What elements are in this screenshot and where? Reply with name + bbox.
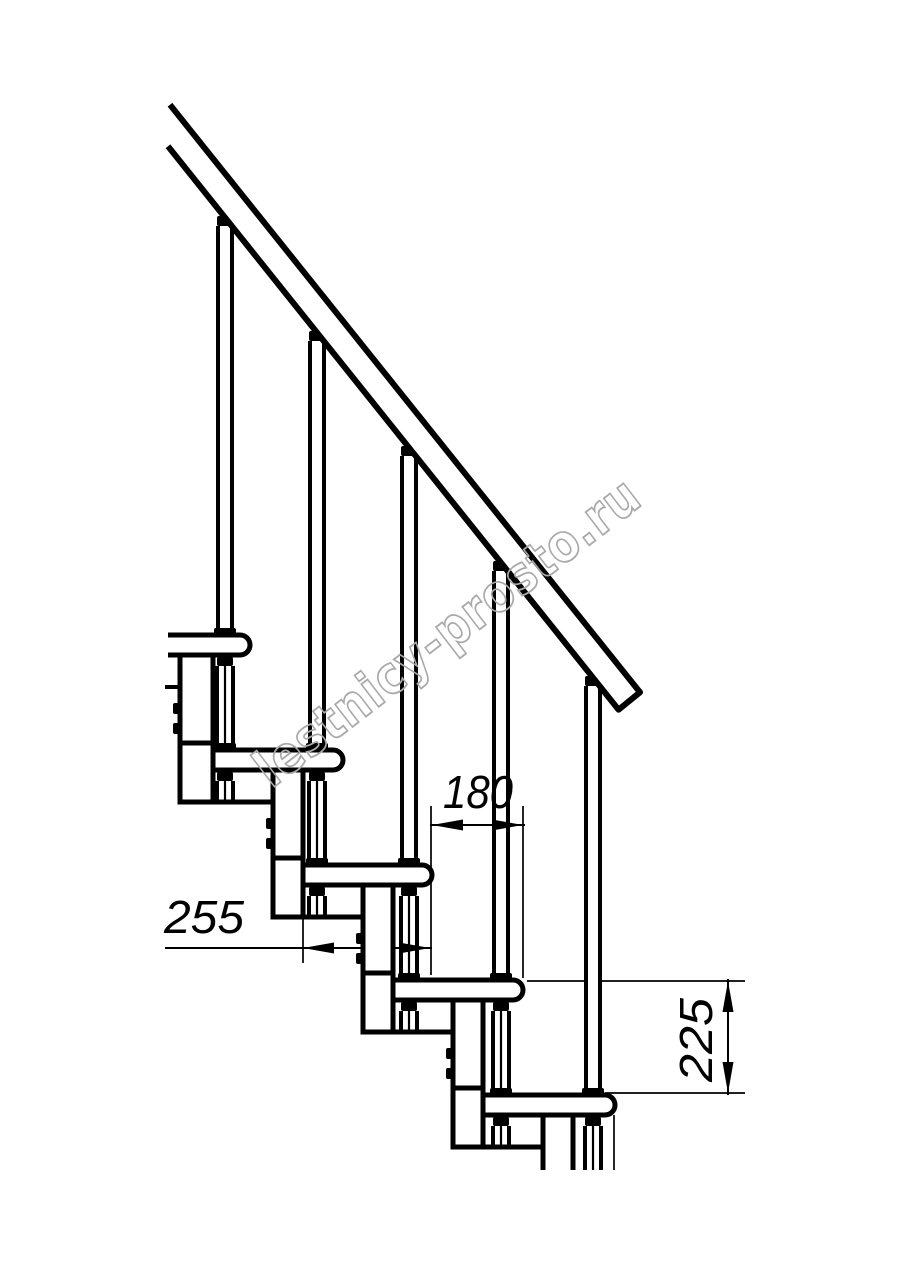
column-bolt: [356, 933, 365, 944]
through-bolt-nut: [401, 1002, 417, 1011]
column-bolt: [446, 1068, 455, 1079]
through-bolt-nut: [401, 887, 417, 896]
baluster-foot-plate: [490, 1088, 512, 1095]
column-bolt: [446, 1048, 455, 1059]
baluster-shaft: [310, 341, 324, 744]
baluster-foot-plate: [214, 628, 236, 635]
through-bolt-nut: [309, 887, 325, 896]
through-bolt-nut: [217, 657, 233, 666]
arrowhead: [303, 943, 334, 954]
baluster-foot-plate: [398, 858, 420, 865]
step-tread: [303, 865, 432, 885]
arrowhead: [723, 981, 734, 1012]
dimension-label-tread-depth: 255: [163, 891, 244, 943]
baluster-shaft: [586, 686, 600, 1089]
arrowhead: [432, 820, 463, 831]
column-body: [180, 655, 213, 802]
through-bolt-nut: [585, 1117, 601, 1126]
arrowhead: [723, 1062, 734, 1093]
baluster-foot-plate: [582, 1088, 604, 1095]
baluster-foot-plate: [490, 973, 512, 980]
column-body: [363, 885, 393, 1032]
baluster-rod: [214, 216, 236, 802]
column-bolt: [173, 723, 182, 734]
spine-column: [543, 1115, 573, 1170]
column-bolt: [266, 818, 275, 829]
baluster-shaft: [218, 226, 232, 629]
baluster-rod: [306, 331, 328, 917]
step-tread: [393, 980, 523, 1000]
drawing-page: 180 255 225 lestnicy-prosto.ru: [0, 0, 914, 1280]
through-bolt-nut: [493, 1117, 509, 1126]
baluster-rod: [490, 561, 512, 1147]
column-bolt: [266, 838, 275, 849]
column-bolt: [173, 703, 182, 714]
staircase-technical-drawing: 180 255 225 lestnicy-prosto.ru: [0, 0, 914, 1280]
baluster-foot-plate: [398, 973, 420, 980]
baluster-foot-plate: [214, 743, 236, 750]
through-bolt-nut: [493, 1002, 509, 1011]
column-bolt: [356, 953, 365, 964]
baluster-foot-plate: [306, 858, 328, 865]
dimension-label-step-rise: 225: [670, 998, 722, 1084]
step-tread: [483, 1095, 615, 1115]
column-body: [453, 1000, 483, 1147]
step-tread: [168, 635, 250, 655]
dimension-label-step-run: 180: [443, 766, 513, 818]
through-bolt-nut: [217, 772, 233, 781]
dimension-225: 225: [670, 981, 734, 1093]
